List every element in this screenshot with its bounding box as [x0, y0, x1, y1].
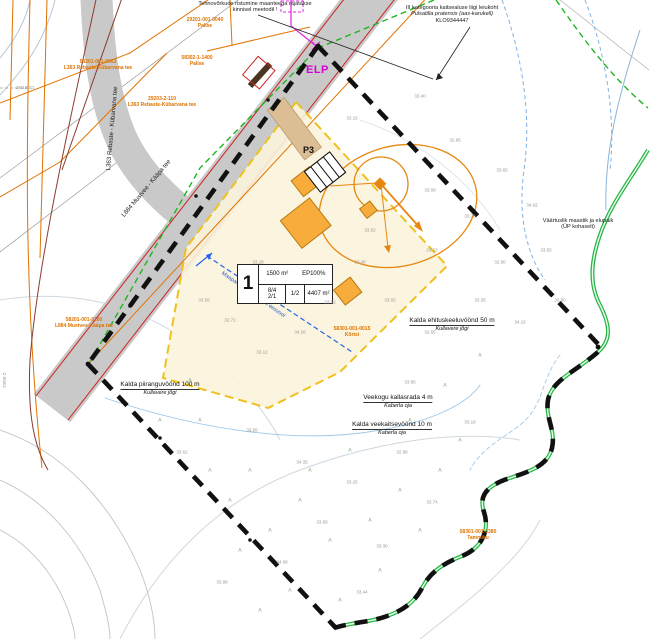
- zone-label-kallasrada: Veekogu kallasrada 4 mKaberla oja: [363, 394, 432, 409]
- vegetation-icon: ⋏: [288, 587, 292, 594]
- vegetation-icon: ⋏: [328, 537, 332, 544]
- parking-label: P3: [303, 145, 314, 155]
- vegetation-icon: ⋏: [478, 352, 482, 359]
- elevation-mark: 32.88: [396, 450, 407, 455]
- vegetation-icon: ⋏: [258, 607, 262, 614]
- elevation-mark: 33.40: [414, 94, 425, 99]
- elevation-mark: 33.25: [346, 480, 357, 485]
- vegetation-icon: ⋏: [238, 547, 242, 554]
- elevation-mark: 34.35: [296, 460, 307, 465]
- elevation-mark: 33.12: [256, 350, 267, 355]
- vegetation-icon: ⋏: [248, 467, 252, 474]
- vegetation-icon: ⋏: [228, 497, 232, 504]
- protected-species-note: III kategooria kaitsealuse liigi leiukoh…: [406, 5, 498, 24]
- site-plan-map: Tehnovõrkude ristumine maanteega rajatak…: [0, 0, 650, 639]
- cadastral-label: 58201-001-0160L884 Mustvee-Kääpa tee: [55, 318, 113, 330]
- plot-landuse: EP100%: [296, 265, 333, 284]
- elevation-mark: 33.28: [252, 260, 263, 265]
- elevation-mark: 32.65: [424, 330, 435, 335]
- elevation-mark: 34.15: [514, 320, 525, 325]
- elevation-mark: 33.22: [426, 248, 437, 253]
- elevation-mark: 33.78: [464, 214, 475, 219]
- survey-vertical-label: 73/09-2: [2, 373, 7, 388]
- vegetation-icon: ⋏: [198, 417, 202, 424]
- elevation-mark: 33.90: [554, 298, 565, 303]
- elevation-mark: 33.55: [540, 248, 551, 253]
- cadastral-label: 29203-2-110L363 Rebaste-Kübarvana tee: [128, 97, 196, 109]
- plot-value-2: 2/1: [268, 294, 276, 300]
- vegetation-icon: ⋏: [188, 377, 192, 384]
- plot-area: 1500 m²: [259, 265, 296, 284]
- zone-label-veekaitsevoond: Kalda veekaitsevöönd 10 mKaberla oja: [352, 421, 432, 436]
- elevation-mark: 33.65: [496, 168, 507, 173]
- elevation-mark: 33.86: [404, 380, 415, 385]
- cadastral-label: 58301-001-0015Kõrtsi: [334, 327, 371, 339]
- survey-point-label: 26/15011: [16, 85, 34, 90]
- elevation-mark: 34.28: [294, 330, 305, 335]
- cadastral-label: 29201-001-0040Palise: [187, 18, 224, 30]
- vegetation-icon: ⋏: [408, 417, 412, 424]
- zone-label-ehituskeeluvoond: Kalda ehituskeeluvöönd 50 mKullavere jõg…: [409, 317, 494, 332]
- elevation-mark: 34.02: [526, 203, 537, 208]
- vegetation-icon: ⋏: [438, 467, 442, 474]
- elevation-mark: 33.62: [176, 450, 187, 455]
- culvert-symbol: [243, 56, 275, 89]
- elevation-mark: 33.08: [424, 188, 435, 193]
- vegetation-icon: ⋏: [158, 417, 162, 424]
- elevation-mark: 33.35: [474, 298, 485, 303]
- vegetation-icon: ⋏: [268, 527, 272, 534]
- cadastral-label: 58301-001-0380Tammiku: [460, 530, 497, 542]
- ditch-lines-blue: [502, 0, 640, 280]
- elevation-mark: 33.98: [216, 580, 227, 585]
- elevation-mark: 33.68: [316, 520, 327, 525]
- elevation-mark: 33.82: [324, 300, 335, 305]
- elevation-mark: 34.08: [276, 560, 287, 565]
- vegetation-icon: ⋏: [378, 567, 382, 574]
- vegetation-icon: ⋏: [308, 467, 312, 474]
- vegetation-icon: ⋏: [338, 597, 342, 604]
- elevation-mark: 33.30: [376, 544, 387, 549]
- top-construction-note: Tehnovõrkude ristumine maanteega rajatak…: [198, 1, 311, 14]
- elevation-mark: 33.05: [384, 298, 395, 303]
- plot-value-3: 1/2: [286, 285, 305, 304]
- vegetation-icon: ⋏: [418, 527, 422, 534]
- vegetation-icon: ⋏: [398, 487, 402, 494]
- vegetation-icon: ⋏: [443, 382, 447, 389]
- cadastral-label: 58302-1-1400Palise: [181, 56, 212, 68]
- plot-info-table: 1 1500 m² EP100% 8/4 2/1 1/2 4407 m²: [237, 264, 333, 304]
- elevation-mark: 32.95: [449, 138, 460, 143]
- vegetation-icon: ⋏: [348, 447, 352, 454]
- elevation-mark: 33.15: [346, 116, 357, 121]
- vegetation-icon: ⋏: [208, 467, 212, 474]
- elevation-mark: 33.74: [426, 500, 437, 505]
- elevation-mark: 33.52: [364, 228, 375, 233]
- elp-label: ELP: [306, 64, 329, 76]
- elevation-mark: 33.95: [246, 428, 257, 433]
- leader-lines: [0, 15, 470, 88]
- elevation-mark: 33.18: [464, 420, 475, 425]
- valuable-landscape-note: Väärtuslik maastik ja elupaik (ÜP kohase…: [543, 218, 614, 231]
- vegetation-icon: ⋏: [368, 517, 372, 524]
- elevation-mark: 32.72: [224, 318, 235, 323]
- cadastral-label: 58201-001-0063L363 Rebaste-Kübarvana tee: [64, 60, 132, 72]
- elevation-mark: 33.58: [198, 298, 209, 303]
- elevation-mark: 33.48: [354, 260, 365, 265]
- vegetation-icon: ⋏: [298, 497, 302, 504]
- elevation-mark: 32.80: [494, 260, 505, 265]
- plot-number: 1: [238, 265, 259, 303]
- elevation-mark: 33.44: [356, 590, 367, 595]
- vegetation-icon: ⋏: [458, 437, 462, 444]
